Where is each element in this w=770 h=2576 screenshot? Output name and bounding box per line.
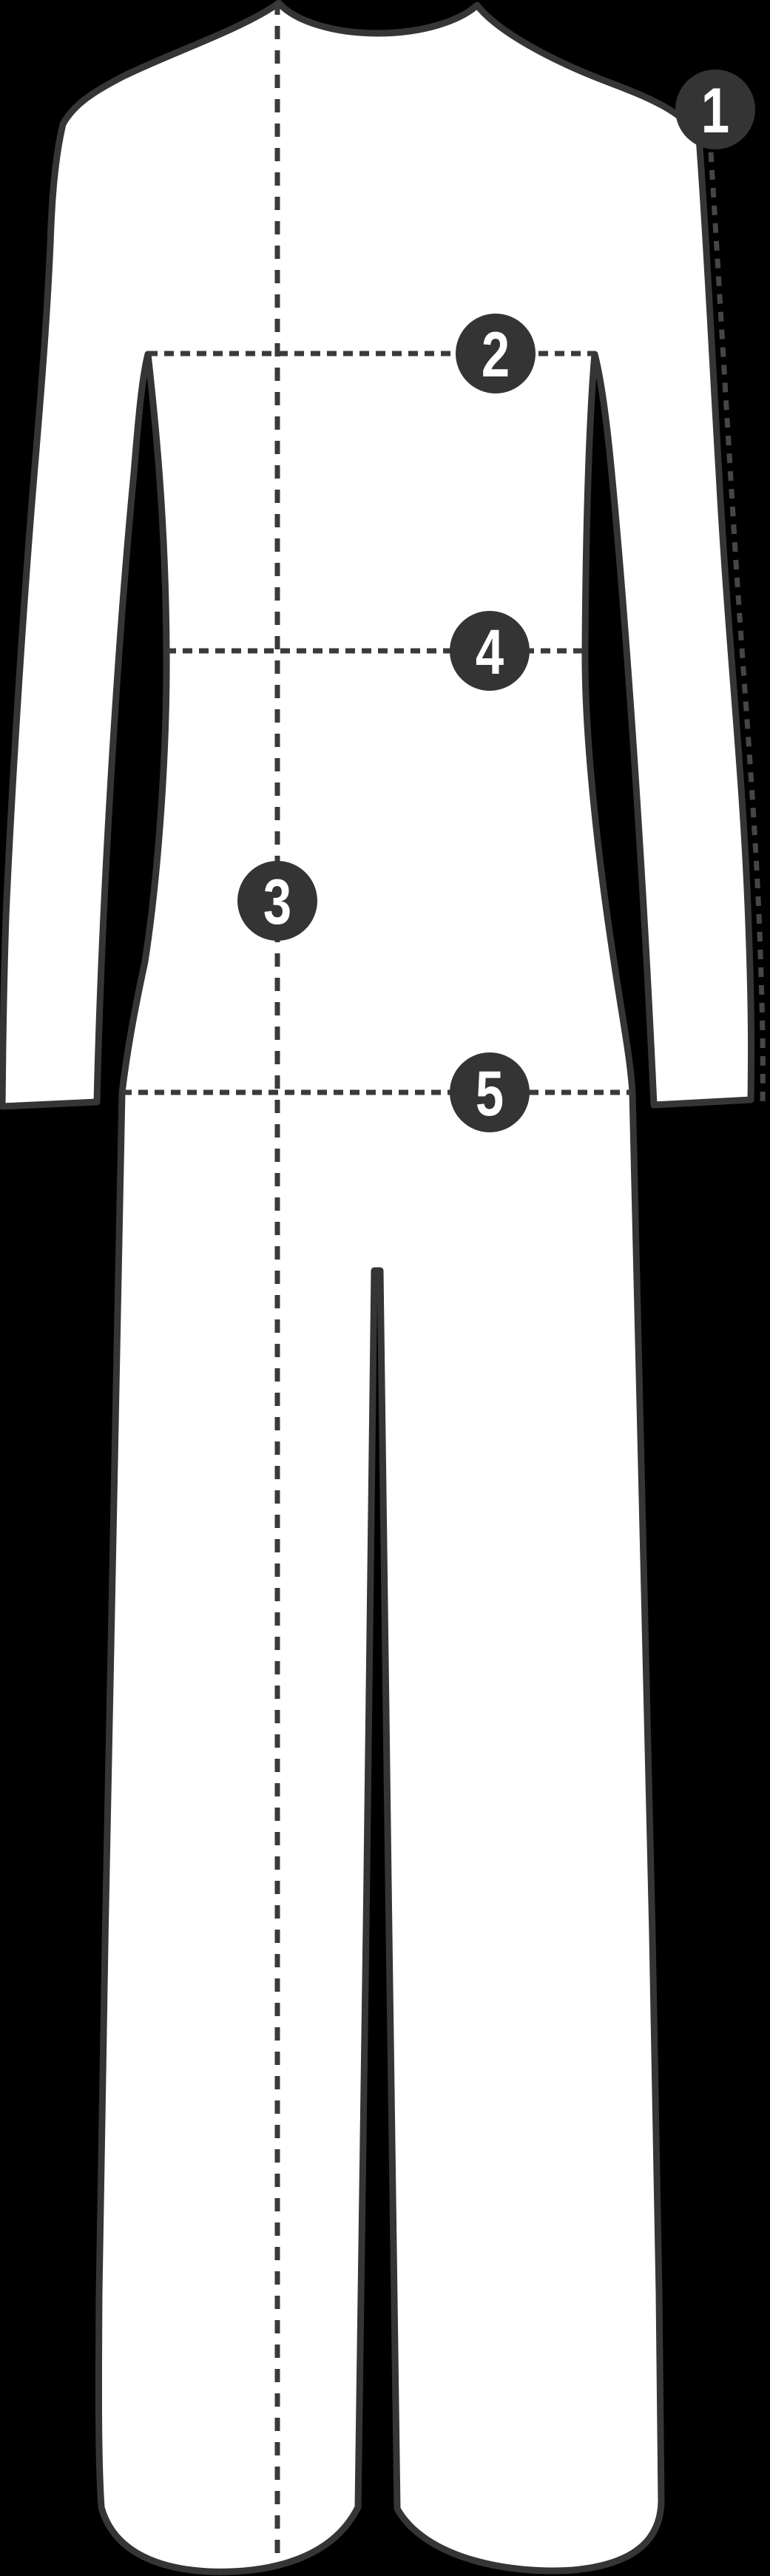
marker-number: 5 [476,1058,504,1129]
measure-marker-3: 3 [237,861,317,941]
measure-marker-1: 1 [675,70,755,149]
measure-marker-5: 5 [450,1052,530,1132]
marker-number: 3 [263,867,291,938]
marker-number: 2 [482,320,510,391]
measure-marker-2: 2 [456,314,536,393]
marker-number: 4 [476,617,504,688]
marker-number: 1 [701,75,729,146]
measurement-diagram-svg: 1 2 3 4 5 [0,0,770,2576]
measure-marker-4: 4 [450,611,530,691]
size-guide-diagram: 1 2 3 4 5 [0,0,770,2576]
